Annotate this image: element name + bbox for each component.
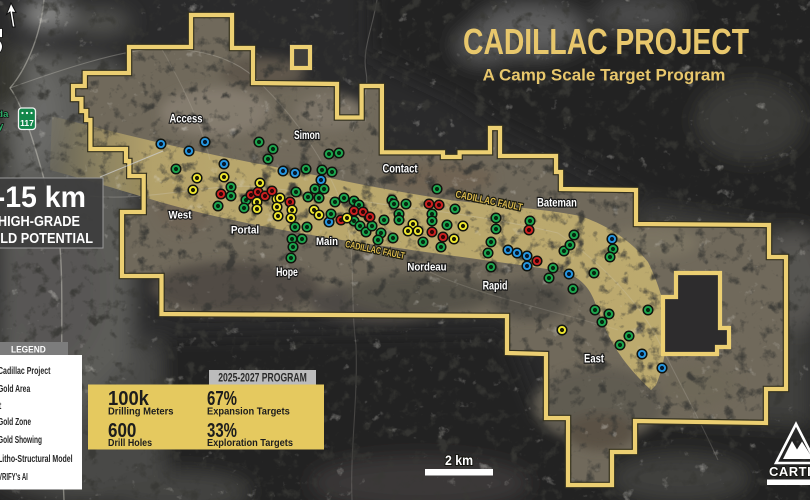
svg-text:Drilling Meters: Drilling Meters — [108, 406, 174, 418]
svg-text:Cadillac Project: Cadillac Project — [0, 365, 51, 377]
svg-text:West: West — [169, 209, 192, 222]
svg-text:Exploration Targets: Exploration Targets — [207, 438, 293, 450]
svg-text:GOLD POTENTIAL: GOLD POTENTIAL — [0, 230, 93, 246]
svg-text:2 km: 2 km — [445, 452, 473, 468]
svg-text:LEGEND: LEGEND — [11, 344, 46, 355]
svg-text:Rapid: Rapid — [483, 281, 508, 293]
svg-text:Simon: Simon — [294, 130, 320, 143]
svg-text:Contact: Contact — [382, 163, 417, 176]
svg-text:2025-2027 PROGRAM: 2025-2027 PROGRAM — [218, 372, 307, 384]
svg-text:Gold Showing: Gold Showing — [0, 434, 42, 446]
svg-text:117: 117 — [20, 118, 34, 128]
svg-text:Portal: Portal — [231, 224, 259, 237]
svg-text:Gold Zone: Gold Zone — [0, 416, 31, 428]
svg-text:A Camp Scale Target Program: A Camp Scale Target Program — [483, 66, 726, 85]
svg-text:Main: Main — [316, 235, 338, 248]
svg-text:Expansion Targets: Expansion Targets — [207, 406, 290, 418]
svg-text:East: East — [584, 353, 604, 366]
svg-text:Access: Access — [170, 113, 203, 126]
svg-text:HIGH-GRADE: HIGH-GRADE — [0, 213, 80, 229]
svg-text:Bateman: Bateman — [537, 197, 577, 210]
svg-text:Drill Holes: Drill Holes — [108, 437, 153, 449]
svg-text:VRIFY's AI: VRIFY's AI — [0, 472, 28, 483]
svg-text:Nordeau: Nordeau — [407, 261, 446, 274]
svg-text:Hope: Hope — [276, 267, 298, 279]
svg-text:ada: ada — [0, 109, 9, 120]
svg-text:Litho-Structural Model: Litho-Structural Model — [0, 453, 73, 465]
svg-text:-15 km: -15 km — [0, 181, 86, 214]
svg-text:CARTIER: CARTIER — [769, 464, 810, 479]
svg-text:CADILLAC PROJECT: CADILLAC PROJECT — [463, 22, 749, 62]
svg-text:Gold Area: Gold Area — [0, 383, 30, 395]
